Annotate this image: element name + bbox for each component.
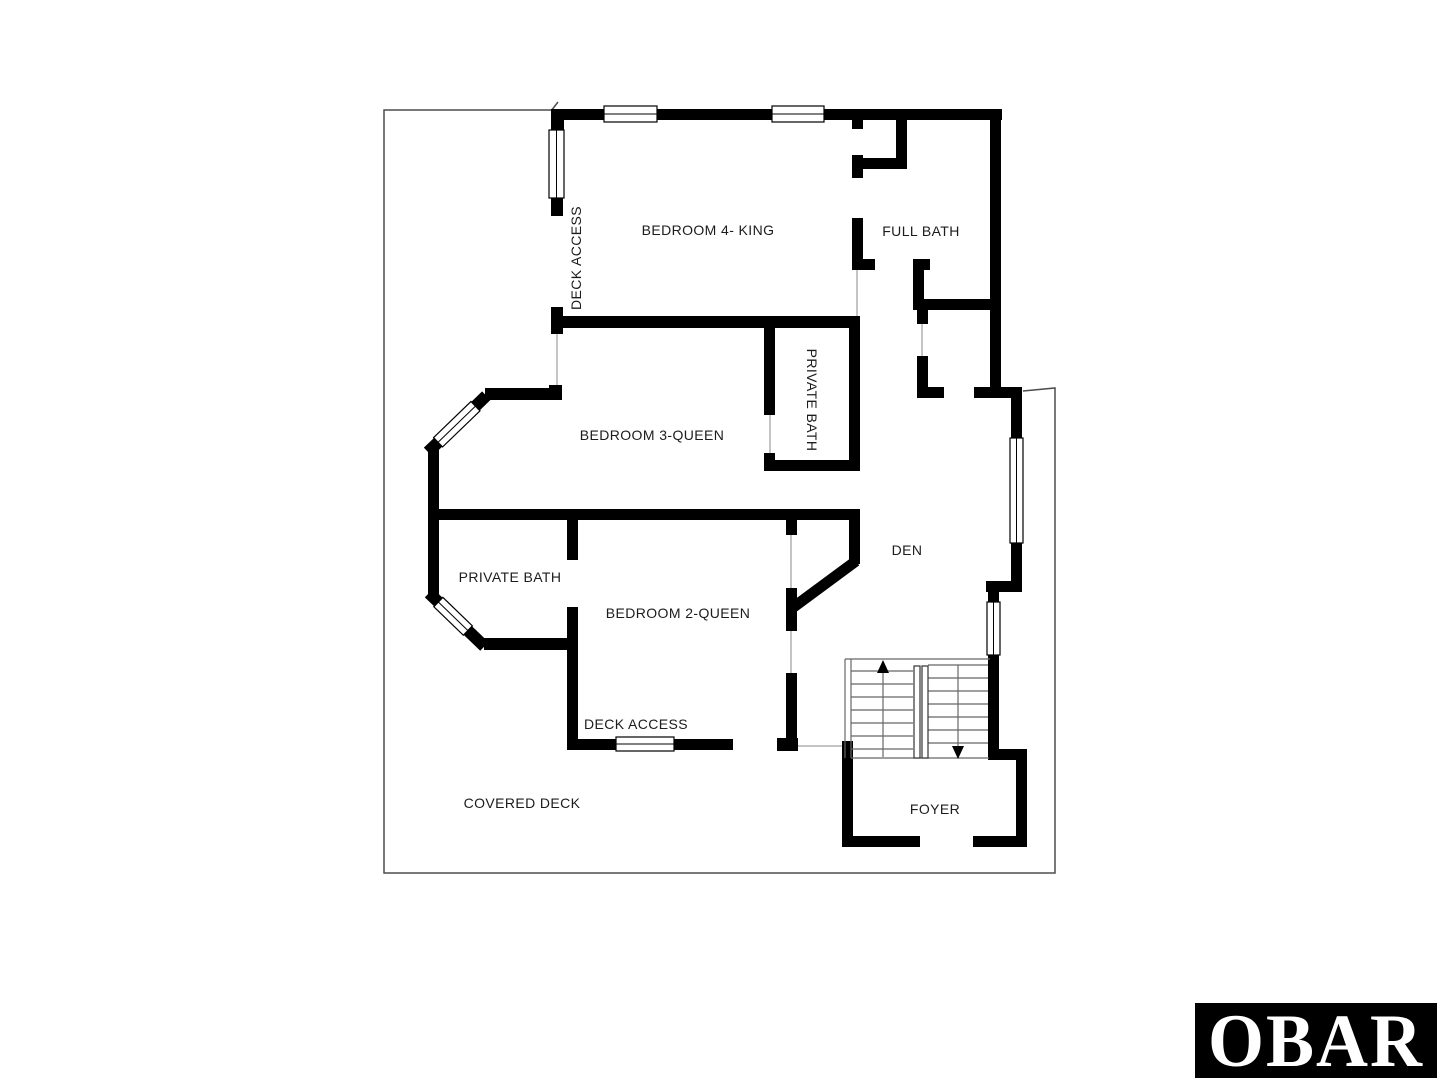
wall-segment bbox=[849, 509, 860, 564]
wall-segment bbox=[973, 836, 1027, 847]
obar-logo: OBAR bbox=[1195, 1003, 1437, 1078]
wall-segment bbox=[852, 259, 875, 270]
window bbox=[987, 602, 1000, 655]
window bbox=[772, 106, 824, 122]
bay-window-lower bbox=[424, 588, 488, 651]
wall-segment bbox=[777, 738, 798, 751]
window bbox=[1010, 438, 1023, 543]
room-label-bedroom3: BEDROOM 3-QUEEN bbox=[580, 427, 724, 443]
wall-segment bbox=[986, 581, 1022, 592]
room-label-full-bath: FULL BATH bbox=[882, 223, 960, 239]
room-label-deck-access-lower: DECK ACCESS bbox=[584, 716, 688, 732]
bay-window-upper bbox=[423, 391, 490, 457]
wall-segment bbox=[764, 328, 775, 415]
wall-segment bbox=[551, 109, 564, 132]
wall-segment bbox=[485, 388, 551, 400]
floor-plan-page: BEDROOM 4- KING FULL BATH DECK ACCESS PR… bbox=[0, 0, 1437, 1078]
obar-logo-text: OBAR bbox=[1208, 1003, 1424, 1078]
room-label-private-bath-bed3: PRIVATE BATH bbox=[804, 349, 820, 452]
window bbox=[616, 737, 674, 751]
wall-segment bbox=[988, 592, 999, 603]
wall-segment bbox=[1011, 390, 1022, 439]
room-label-bedroom4: BEDROOM 4- KING bbox=[642, 222, 775, 238]
window bbox=[604, 106, 657, 122]
room-label-bedroom2: BEDROOM 2-QUEEN bbox=[606, 605, 750, 621]
deck-outline bbox=[384, 102, 1055, 873]
wall-segment bbox=[567, 520, 578, 560]
stairs-up-arrow bbox=[877, 660, 889, 757]
wall-segment bbox=[567, 607, 578, 750]
wall-segment bbox=[852, 158, 907, 169]
room-label-foyer: FOYER bbox=[910, 801, 960, 817]
wall-segment bbox=[484, 638, 578, 650]
wall-segment bbox=[1011, 542, 1022, 583]
wall-segment bbox=[917, 310, 928, 324]
wall-segment bbox=[562, 316, 860, 328]
wall-segment bbox=[917, 387, 944, 398]
wall-segment bbox=[918, 299, 1001, 310]
wall-segment bbox=[849, 316, 860, 469]
wall-segment bbox=[1016, 749, 1027, 847]
wall-segment bbox=[786, 588, 797, 631]
wall-segment bbox=[917, 356, 928, 388]
wall-segment bbox=[551, 307, 563, 334]
wall-segment bbox=[852, 218, 863, 260]
room-label-deck-access-upper: DECK ACCESS bbox=[568, 206, 584, 310]
stair-railing bbox=[914, 666, 928, 758]
wall-segment bbox=[786, 520, 797, 535]
room-label-den: DEN bbox=[892, 542, 923, 558]
wall-segment bbox=[438, 509, 860, 520]
door-openings bbox=[557, 270, 922, 746]
wall-segment bbox=[842, 836, 920, 847]
window bbox=[549, 130, 564, 198]
wall-segment bbox=[551, 197, 563, 216]
wall-segment bbox=[852, 119, 863, 129]
stairs-down-arrow bbox=[952, 665, 964, 759]
walls bbox=[428, 109, 1027, 847]
floor-plan-drawing: BEDROOM 4- KING FULL BATH DECK ACCESS PR… bbox=[0, 0, 1437, 1078]
den-diagonal-wall bbox=[791, 561, 856, 609]
room-label-covered-deck: COVERED DECK bbox=[464, 795, 581, 811]
wall-segment bbox=[428, 446, 439, 597]
room-label-private-bath-bed2: PRIVATE BATH bbox=[459, 569, 562, 585]
staircase bbox=[845, 659, 990, 759]
wall-segment bbox=[988, 654, 999, 751]
wall-segment bbox=[990, 109, 1001, 390]
wall-segment bbox=[764, 460, 860, 471]
